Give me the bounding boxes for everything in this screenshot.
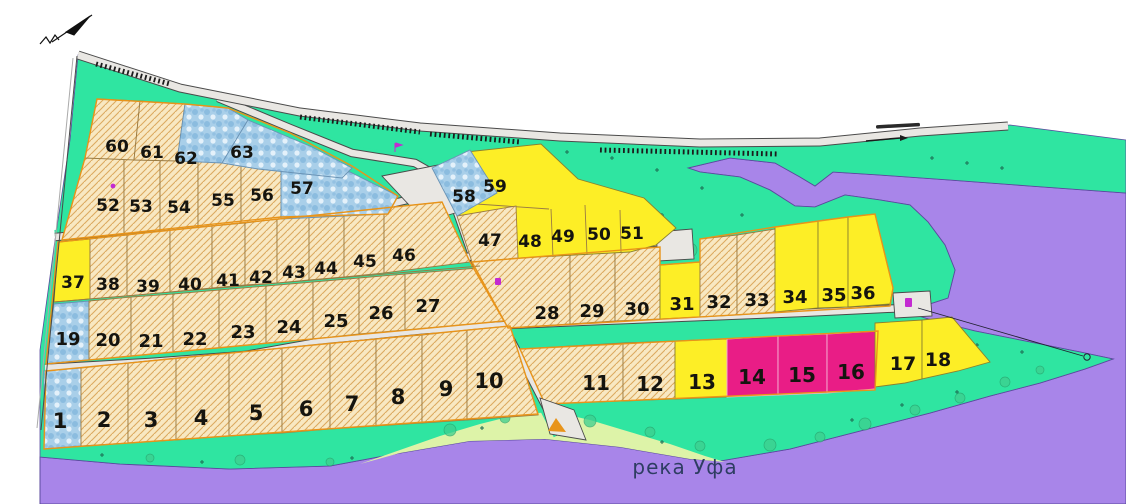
plot-label-43: 43	[282, 263, 306, 283]
plot-label-29: 29	[579, 301, 604, 322]
plot-label-5: 5	[249, 401, 264, 425]
plot-label-56: 56	[250, 186, 274, 206]
plot-label-57: 57	[290, 179, 314, 199]
plot-label-42: 42	[249, 268, 273, 288]
plot-label-7: 7	[345, 392, 360, 416]
plot-8[interactable]	[376, 335, 422, 426]
plot-label-23: 23	[230, 322, 255, 343]
plot-label-30: 30	[624, 299, 649, 320]
plot-label-58: 58	[452, 187, 476, 207]
plot-label-31: 31	[669, 294, 694, 315]
plot-label-4: 4	[194, 406, 209, 430]
plot-label-21: 21	[138, 331, 163, 352]
plot-label-63: 63	[230, 143, 254, 163]
plot-label-24: 24	[276, 317, 301, 338]
utility-marker-icon	[495, 278, 501, 285]
plot-label-16: 16	[837, 360, 865, 384]
plot-label-26: 26	[368, 303, 393, 324]
plot-label-47: 47	[478, 231, 502, 251]
plot-label-59: 59	[483, 177, 507, 197]
plot-label-17: 17	[890, 353, 916, 375]
plot-label-14: 14	[738, 365, 766, 389]
plot-label-12: 12	[636, 372, 664, 396]
plot-label-22: 22	[182, 329, 207, 350]
plot-2[interactable]	[81, 363, 128, 446]
plot-label-61: 61	[140, 143, 164, 163]
plot-label-53: 53	[129, 197, 153, 217]
plot-label-13: 13	[688, 370, 716, 394]
plot-label-45: 45	[353, 252, 377, 272]
plot-label-11: 11	[582, 371, 610, 395]
road-turnaround-far-east	[893, 291, 932, 318]
plot-label-49: 49	[551, 227, 575, 247]
plot-label-40: 40	[178, 275, 202, 295]
plot-label-55: 55	[211, 191, 235, 211]
plot-label-8: 8	[391, 385, 406, 409]
plot-label-50: 50	[587, 225, 611, 245]
dot-marker-icon	[111, 184, 116, 189]
plot-label-27: 27	[415, 296, 440, 317]
plot-label-25: 25	[323, 311, 348, 332]
plot-label-9: 9	[439, 377, 454, 401]
plot-label-3: 3	[144, 408, 159, 432]
plot-label-60: 60	[105, 137, 129, 157]
plot-label-51: 51	[620, 224, 644, 244]
plot-label-20: 20	[95, 330, 120, 351]
plot-label-52: 52	[96, 196, 120, 216]
plot-label-44: 44	[314, 259, 338, 279]
plot-label-1: 1	[53, 409, 68, 433]
plot-label-38: 38	[96, 275, 120, 295]
plot-label-41: 41	[216, 271, 240, 291]
utility-marker-icon	[905, 298, 912, 307]
plot-label-36: 36	[850, 283, 875, 304]
plot-54[interactable]	[160, 160, 198, 231]
river-name-label: река Уфа	[632, 455, 737, 479]
plot-label-37: 37	[61, 273, 85, 293]
plot-label-32: 32	[706, 292, 731, 313]
plot-label-34: 34	[782, 287, 807, 308]
plot-label-15: 15	[788, 363, 816, 387]
plot-label-48: 48	[518, 232, 542, 252]
plot-label-6: 6	[299, 397, 314, 421]
plot-label-28: 28	[534, 303, 559, 324]
plot-label-18: 18	[925, 349, 951, 371]
plot-label-54: 54	[167, 198, 191, 218]
plot-label-33: 33	[744, 290, 769, 311]
plot-label-2: 2	[97, 408, 112, 432]
site-plan-page: 1 2 3 4 5 6 7 8 9 10 11 12 13 14 15 16 1…	[0, 0, 1126, 504]
plot-label-19: 19	[55, 329, 80, 350]
site-plan-map: 1 2 3 4 5 6 7 8 9 10 11 12 13 14 15 16 1…	[0, 0, 1126, 504]
plot-label-46: 46	[392, 246, 416, 266]
plot-label-39: 39	[136, 277, 160, 297]
plot-label-62: 62	[174, 149, 198, 169]
plot-label-10: 10	[474, 369, 503, 393]
plot-label-35: 35	[821, 285, 846, 306]
